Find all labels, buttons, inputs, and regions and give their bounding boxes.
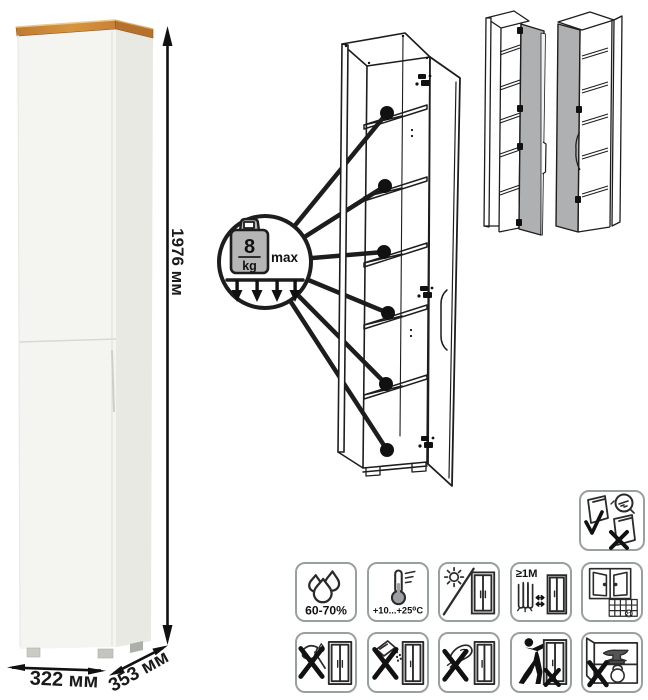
sun-icon: [445, 568, 464, 587]
top-panel: [342, 33, 430, 66]
care-icon-no-overload: [581, 632, 643, 693]
wall-anchor-warning-icon: [579, 490, 645, 551]
care-icon-temperature: +10...+25⁰C: [367, 562, 429, 622]
care-icon-no-abrasives: [367, 632, 429, 693]
temperature-label: +10...+25⁰C: [373, 605, 424, 615]
care-icon-no-sunlight: [438, 562, 500, 622]
open-window-icon: [590, 569, 631, 599]
shelf-callout-dots: [377, 106, 395, 457]
kettlebell-icon: [611, 665, 624, 682]
load-unit: kg: [242, 259, 257, 273]
humidity-label: 60-70%: [305, 603, 347, 617]
person-icon: [519, 638, 545, 684]
cabinet-icon: [475, 642, 495, 684]
cabinet-icon: [403, 642, 424, 684]
radiator-icon: [518, 583, 533, 612]
height-dimension-arrow: [155, 18, 181, 658]
cabinet-icon: [548, 575, 567, 613]
door-left-variant-drawing: [556, 12, 622, 232]
height-dimension-label: 1976 мм: [167, 202, 187, 322]
cabinet-icon: [472, 572, 494, 613]
calendar-icon: [609, 599, 637, 616]
care-icon-no-dragging: [510, 632, 572, 693]
door-right-variant-drawing: [484, 11, 546, 235]
distance-arrows-icon: [536, 596, 543, 606]
care-icon-heat-distance: ≥1М: [510, 562, 572, 622]
distance-label: ≥1М: [516, 568, 538, 580]
cabinet-icon: [329, 642, 351, 684]
handle: [543, 142, 547, 174]
care-icon-ventilation: 21: [581, 562, 643, 622]
care-icon-humidity: 60-70%: [295, 562, 357, 622]
cabinet-side-face: [116, 29, 153, 647]
load-value: 8: [244, 236, 255, 258]
care-icon-no-axe: [295, 632, 357, 693]
exploded-view-drawing: 8 kg max: [210, 18, 470, 510]
calendar-day: 21: [625, 612, 632, 618]
product-sheet: 1976 мм 322 мм 353 мм: [0, 0, 648, 700]
load-qualifier: max: [271, 250, 299, 265]
door-variant-drawings: [478, 5, 648, 245]
care-icon-no-wet-cloth: [438, 632, 500, 693]
